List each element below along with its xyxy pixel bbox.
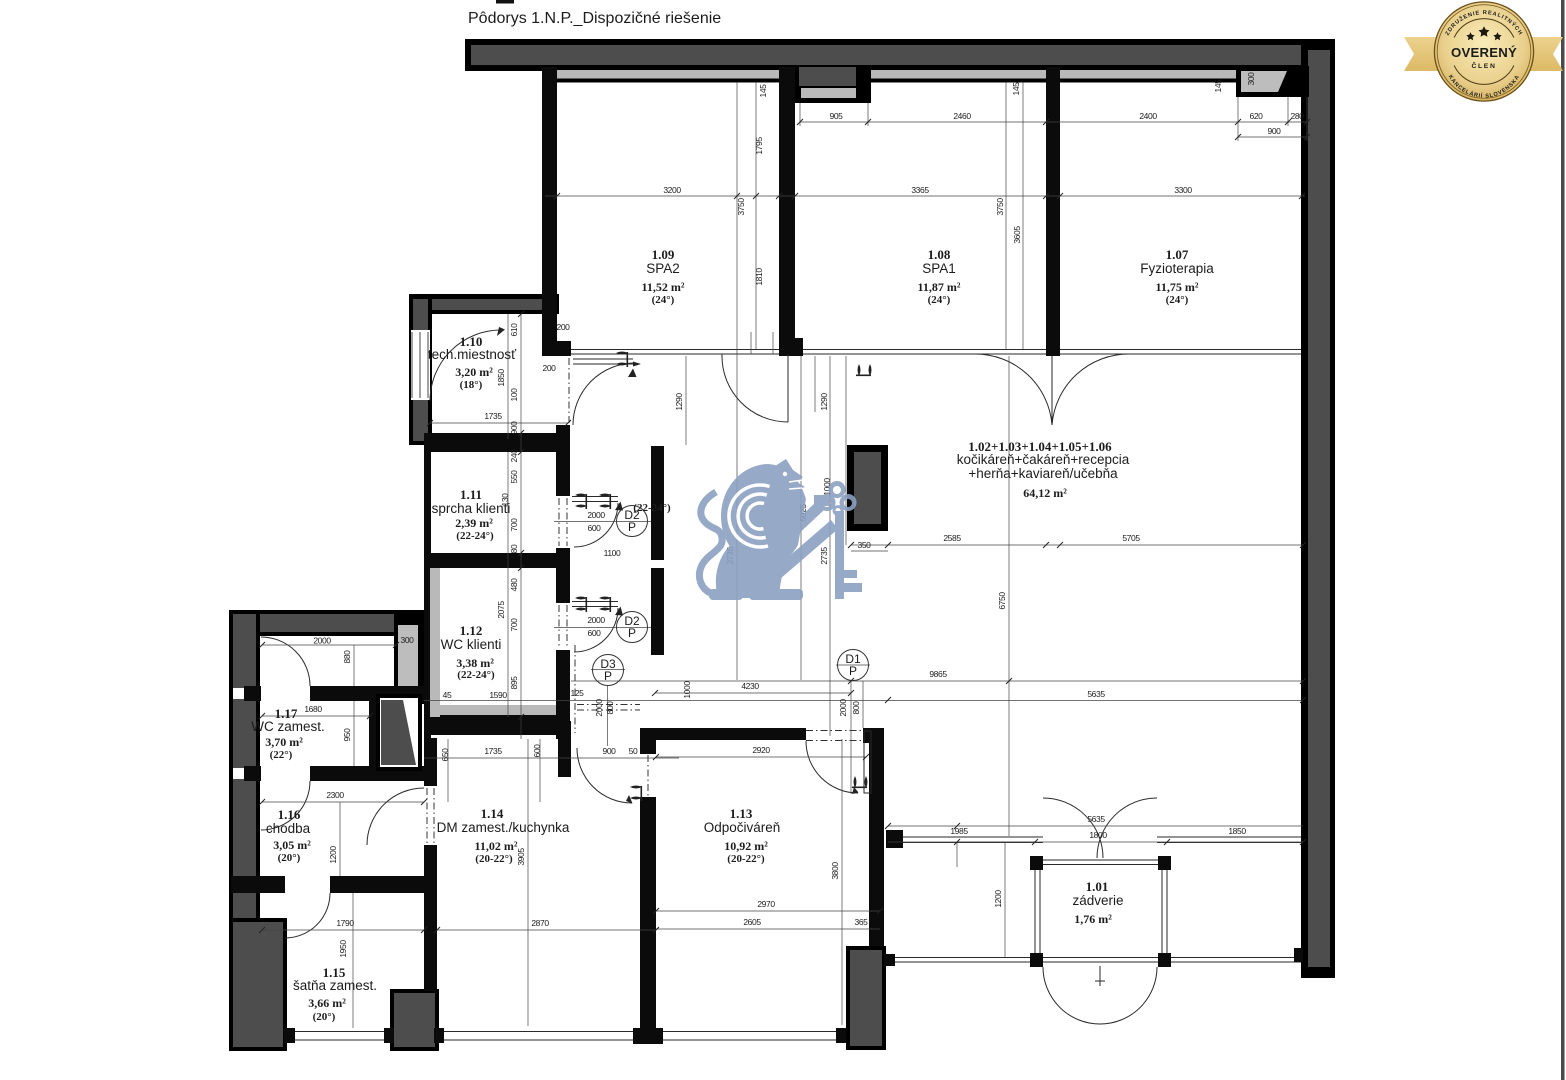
svg-text:P: P: [604, 669, 612, 683]
svg-text:3,66 m²: 3,66 m²: [308, 996, 346, 1010]
svg-text:1590: 1590: [489, 690, 507, 700]
svg-text:DM zamest./kuchynka: DM zamest./kuchynka: [437, 820, 570, 835]
svg-text:2075: 2075: [496, 601, 506, 619]
svg-text:600: 600: [588, 628, 602, 638]
svg-text:zádverie: zádverie: [1072, 893, 1123, 908]
svg-text:6750: 6750: [997, 592, 1007, 610]
svg-text:100: 100: [509, 388, 519, 402]
svg-text:11,52 m²: 11,52 m²: [642, 280, 685, 294]
svg-text:11,87 m²: 11,87 m²: [918, 280, 961, 294]
svg-text:2460: 2460: [953, 111, 971, 121]
svg-text:ČLEN: ČLEN: [1472, 61, 1497, 70]
svg-text:3200: 3200: [663, 185, 681, 195]
svg-text:2605: 2605: [743, 917, 761, 927]
svg-text:300: 300: [401, 635, 415, 645]
svg-text:620: 620: [1250, 111, 1264, 121]
svg-text:1200: 1200: [328, 846, 338, 864]
svg-text:45: 45: [443, 690, 452, 700]
svg-text:880: 880: [342, 650, 352, 664]
svg-text:145: 145: [1213, 79, 1223, 93]
svg-text:2735: 2735: [819, 547, 829, 565]
svg-text:240: 240: [509, 449, 519, 463]
svg-text:1985: 1985: [950, 826, 968, 836]
svg-text:1290: 1290: [674, 393, 684, 411]
svg-text:(22-24°): (22-24°): [456, 530, 494, 542]
svg-text:P: P: [849, 664, 857, 678]
svg-text:4230: 4230: [741, 681, 759, 691]
svg-text:800: 800: [605, 701, 615, 715]
svg-text:1.14: 1.14: [481, 806, 504, 821]
svg-text:1680: 1680: [304, 704, 322, 714]
svg-text:3905: 3905: [516, 848, 526, 866]
svg-text:2400: 2400: [1139, 111, 1157, 121]
svg-text:1850: 1850: [496, 369, 506, 387]
svg-text:(24°): (24°): [928, 294, 951, 306]
svg-text:11,75 m²: 11,75 m²: [1156, 280, 1199, 294]
svg-text:(20-22°): (20-22°): [727, 853, 765, 865]
svg-text:280: 280: [1291, 111, 1305, 121]
svg-text:(22°): (22°): [270, 749, 293, 761]
svg-text:11,02 m²: 11,02 m²: [475, 839, 518, 853]
svg-text:145: 145: [1011, 82, 1021, 96]
svg-text:200: 200: [557, 322, 571, 332]
svg-text:3,38 m²: 3,38 m²: [456, 656, 494, 670]
svg-text:WC klienti: WC klienti: [441, 637, 502, 652]
svg-text:1.13: 1.13: [730, 806, 753, 821]
svg-text:3365: 3365: [911, 185, 929, 195]
svg-text:895: 895: [509, 676, 519, 690]
svg-text:2000: 2000: [594, 699, 604, 717]
svg-text:(20°): (20°): [313, 1011, 336, 1023]
svg-text:480: 480: [509, 578, 519, 592]
svg-text:1.07: 1.07: [1166, 247, 1189, 262]
svg-text:kočikáreň+čakáreň+recepcia: kočikáreň+čakáreň+recepcia: [957, 452, 1130, 467]
svg-text:2585: 2585: [943, 533, 961, 543]
svg-text:1,76 m²: 1,76 m²: [1074, 912, 1112, 926]
svg-text:tech.miestnosť: tech.miestnosť: [428, 347, 517, 362]
svg-text:1735: 1735: [484, 411, 502, 421]
svg-text:600: 600: [532, 744, 542, 758]
svg-text:(18°): (18°): [460, 379, 483, 391]
svg-text:2,39 m²: 2,39 m²: [455, 516, 493, 530]
svg-text:200: 200: [543, 363, 557, 373]
svg-text:600: 600: [588, 523, 602, 533]
svg-text:2000: 2000: [587, 615, 605, 625]
svg-text:3300: 3300: [1174, 185, 1192, 195]
svg-text:(22-24°): (22-24°): [457, 669, 495, 681]
svg-text:chodba: chodba: [266, 821, 311, 836]
svg-text:šatňa zamest.: šatňa zamest.: [293, 978, 377, 993]
svg-text:2870: 2870: [531, 918, 549, 928]
svg-text:350: 350: [858, 540, 872, 550]
svg-text:900: 900: [1268, 126, 1282, 136]
svg-text:80: 80: [509, 544, 519, 553]
svg-text:Pôdorys 1.N.P._Dispozičné rieš: Pôdorys 1.N.P._Dispozičné riešenie: [468, 10, 721, 27]
svg-text:1290: 1290: [819, 393, 829, 411]
svg-text:64,12 m²: 64,12 m²: [1023, 486, 1067, 500]
svg-text:1735: 1735: [484, 746, 502, 756]
svg-text:3750: 3750: [736, 198, 746, 216]
svg-text:P: P: [628, 626, 636, 640]
svg-text:1.08: 1.08: [928, 247, 951, 262]
svg-text:1790: 1790: [336, 918, 354, 928]
svg-text:5635: 5635: [1087, 814, 1105, 824]
svg-text:(24°): (24°): [652, 294, 675, 306]
svg-text:2000: 2000: [838, 699, 848, 717]
svg-text:700: 700: [509, 618, 519, 632]
svg-text:905: 905: [830, 111, 844, 121]
svg-text:(20-22°): (20-22°): [475, 853, 513, 865]
svg-text:1.12: 1.12: [460, 623, 483, 638]
svg-text:1.16: 1.16: [278, 807, 301, 822]
svg-text:(22-24°): (22-24°): [633, 502, 671, 514]
svg-text:800: 800: [851, 701, 861, 715]
svg-text:700: 700: [509, 518, 519, 532]
svg-text:950: 950: [342, 728, 352, 742]
svg-text:3750: 3750: [995, 198, 1005, 216]
svg-text:2920: 2920: [752, 745, 770, 755]
svg-text:3,70 m²: 3,70 m²: [265, 735, 303, 749]
svg-text:2000: 2000: [587, 510, 605, 520]
svg-text:300: 300: [1246, 72, 1256, 86]
svg-text:3605: 3605: [1012, 226, 1022, 244]
svg-text:3,05 m²: 3,05 m²: [273, 838, 311, 852]
svg-text:550: 550: [509, 470, 519, 484]
svg-text:Fyzioterapia: Fyzioterapia: [1140, 261, 1214, 276]
svg-text:2300: 2300: [326, 790, 344, 800]
svg-text:1.09: 1.09: [652, 247, 675, 262]
svg-text:3,20 m²: 3,20 m²: [455, 365, 493, 379]
svg-text:1795: 1795: [754, 137, 764, 155]
svg-text:900: 900: [509, 421, 519, 435]
svg-text:1.11: 1.11: [460, 487, 482, 502]
svg-text:SPA2: SPA2: [646, 261, 680, 276]
svg-text:Odpočiváreň: Odpočiváreň: [704, 820, 781, 835]
svg-text:5635: 5635: [1087, 689, 1105, 699]
svg-text:2970: 2970: [757, 899, 775, 909]
svg-text:5705: 5705: [1122, 533, 1140, 543]
svg-text:3800: 3800: [830, 862, 840, 880]
svg-text:1100: 1100: [604, 548, 621, 558]
svg-text:900: 900: [603, 746, 617, 756]
svg-text:SPA1: SPA1: [922, 261, 956, 276]
svg-text:(20°): (20°): [278, 852, 301, 864]
svg-text:610: 610: [509, 323, 519, 337]
svg-text:1810: 1810: [754, 268, 764, 286]
svg-text:9865: 9865: [929, 669, 947, 679]
svg-text:1950: 1950: [338, 940, 348, 958]
svg-text:P: P: [628, 520, 636, 534]
svg-text:2000: 2000: [313, 636, 331, 646]
svg-text:WC zamest.: WC zamest.: [251, 719, 325, 734]
svg-text:10,92 m²: 10,92 m²: [724, 839, 768, 853]
svg-text:+herňa+kaviareň/učebňa: +herňa+kaviareň/učebňa: [968, 466, 1118, 481]
svg-text:1.01: 1.01: [1086, 879, 1109, 894]
svg-text:1200: 1200: [993, 890, 1003, 908]
svg-text:365: 365: [855, 917, 869, 927]
svg-text:(24°): (24°): [1166, 294, 1189, 306]
svg-text:650: 650: [440, 748, 450, 762]
svg-text:sprcha klienti: sprcha klienti: [432, 501, 511, 516]
svg-text:1000: 1000: [682, 681, 692, 699]
svg-text:1850: 1850: [1228, 826, 1246, 836]
svg-text:145: 145: [758, 84, 768, 98]
svg-text:50: 50: [629, 746, 638, 756]
svg-text:OVERENÝ: OVERENÝ: [1451, 45, 1517, 60]
svg-text:1800: 1800: [1089, 830, 1107, 840]
svg-text:125: 125: [571, 688, 585, 698]
